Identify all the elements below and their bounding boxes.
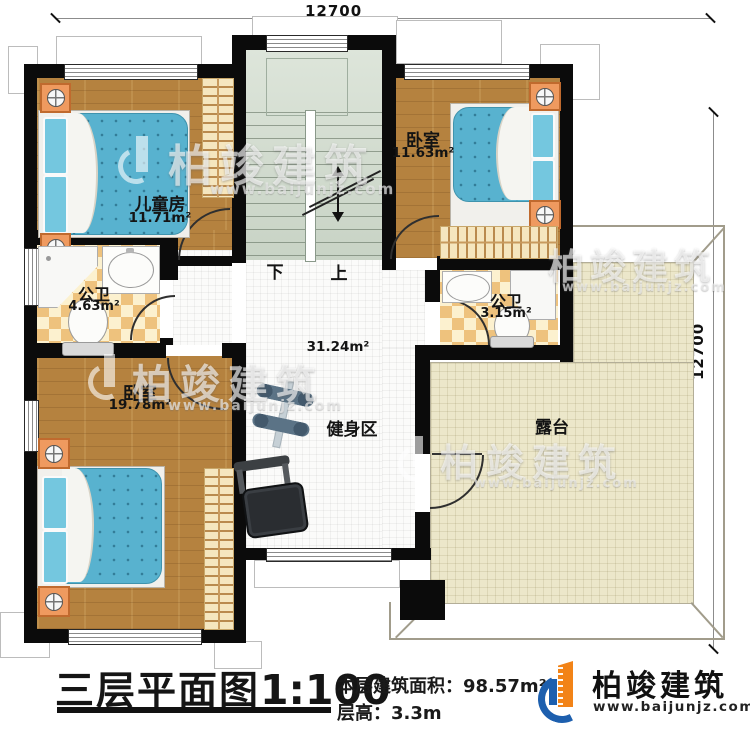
watermark-building-icon <box>413 436 423 467</box>
room-area-bath-left: 4.63m² <box>60 299 128 314</box>
floor-area-line: 本层建筑面积：98.57m² <box>337 672 547 698</box>
nightstand <box>529 82 561 111</box>
brand-building-blue-icon <box>549 679 557 705</box>
nightstand-dial <box>536 88 554 106</box>
window <box>266 548 392 562</box>
shower-drain <box>46 256 51 261</box>
toilet-tank <box>490 336 534 348</box>
treadmill-belt <box>241 481 309 539</box>
nightstand <box>38 438 70 469</box>
column <box>400 580 445 620</box>
watermark-url: www.baijunjz.com <box>474 476 639 491</box>
nightstand <box>40 83 71 113</box>
wardrobe <box>204 468 234 630</box>
watermark-logo-icon <box>398 436 432 478</box>
treadmill <box>229 450 323 539</box>
watermark-url: www.baijunjz.com <box>210 180 395 198</box>
brand-building-orange-icon <box>558 661 573 707</box>
faucet <box>126 248 134 253</box>
window-sill <box>396 20 502 64</box>
floor-height-label: 层高： <box>337 703 391 724</box>
bed-blanket <box>496 107 530 200</box>
parapet-line <box>389 602 391 640</box>
watermark-logo-icon <box>88 354 124 398</box>
wall <box>425 270 440 302</box>
parapet-miter <box>691 602 724 638</box>
floor-height-line: 层高：3.3m <box>337 699 442 725</box>
wall <box>560 64 573 362</box>
bed-pillow <box>42 476 68 530</box>
bed-pillow <box>531 159 555 203</box>
window <box>266 35 348 52</box>
wardrobe <box>440 226 558 259</box>
window-sill <box>254 560 400 588</box>
stair-arrow-down <box>332 212 344 222</box>
parapet-line <box>573 225 725 227</box>
nightstand-dial <box>45 593 63 611</box>
watermark: 柏竣建筑 www.baijunjz.com <box>398 432 638 492</box>
watermark-url: www.baijunjz.com <box>562 280 727 295</box>
watermark: 柏竣建筑 www.baijunjz.com <box>88 352 348 412</box>
nightstand <box>529 200 561 229</box>
window <box>64 64 198 80</box>
window <box>68 629 202 645</box>
brand-url: www.baijunjz.com <box>593 699 750 715</box>
room-label-gym: 健身区 <box>317 415 387 440</box>
room-area-bath-right: 3.15m² <box>472 306 540 321</box>
title-underline <box>57 707 331 713</box>
floor-height-value: 3.3m <box>391 703 442 724</box>
room-area-kids: 11.71m² <box>110 210 210 226</box>
watermark: 柏竣建筑 www.baijunjz.com <box>118 130 418 200</box>
nightstand-dial <box>47 89 65 107</box>
stair-label-down: 下 <box>261 258 289 283</box>
floor-area-value: 98.57m² <box>463 676 547 697</box>
parapet-line <box>390 638 725 640</box>
bed-pillow <box>43 175 68 234</box>
floor-area-label: 本层建筑面积： <box>337 676 463 697</box>
brand-logo-icon <box>538 659 586 717</box>
stair-void-outline <box>266 58 348 116</box>
gym-floor <box>382 270 425 348</box>
watermark-logo-icon <box>118 136 158 184</box>
bed-pillow <box>43 117 68 175</box>
watermark-url: www.baijunjz.com <box>168 398 343 414</box>
window <box>24 248 39 306</box>
bed-pillow <box>531 113 555 159</box>
nightstand-dial <box>536 206 554 224</box>
floorplan-canvas: 12700 12700 <box>0 0 750 729</box>
watermark: 柏竣建筑 www.baijunjz.com <box>548 238 748 298</box>
window <box>404 64 530 80</box>
stair-label-up: 上 <box>325 259 353 284</box>
right-dimension-line <box>713 112 714 650</box>
bed-pillow <box>42 530 68 584</box>
watermark-building-icon <box>104 354 115 387</box>
nightstand-dial <box>45 445 63 463</box>
window <box>24 400 39 452</box>
wall <box>393 548 431 560</box>
watermark-building-icon <box>136 136 148 172</box>
nightstand <box>38 586 70 617</box>
